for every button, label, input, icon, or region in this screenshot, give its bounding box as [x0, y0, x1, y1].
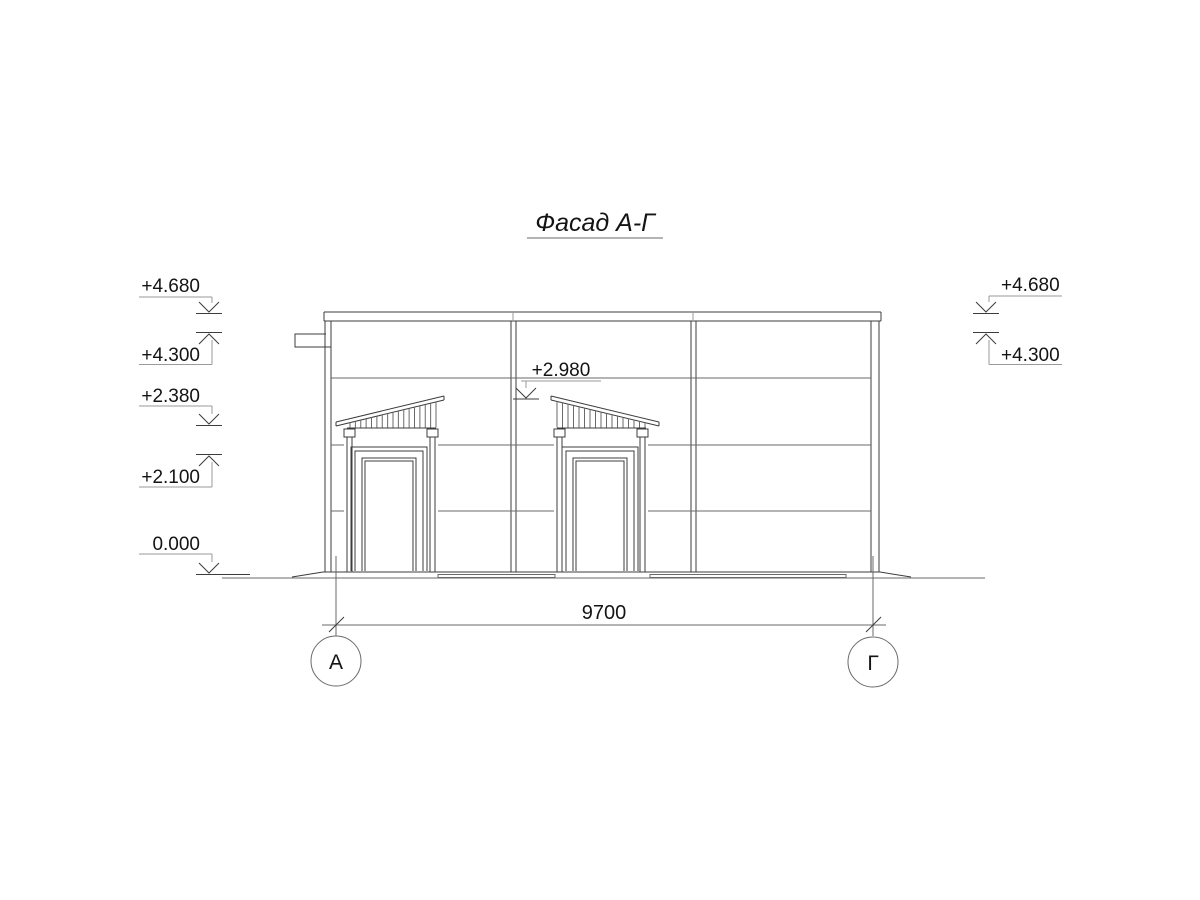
title-block: Фасад А-Г [527, 209, 663, 238]
elevation-value: +4.300 [1001, 345, 1060, 366]
door1-mask [344, 437, 438, 572]
facade-elevation-drawing: Фасад А-Г [0, 0, 1200, 900]
axis-label-right: Г [867, 652, 878, 675]
dimension-value: 9700 [582, 602, 627, 624]
elevation-value: +4.680 [1001, 275, 1060, 296]
drawing-title: Фасад А-Г [535, 209, 657, 237]
elevation-value: +2.980 [532, 360, 591, 381]
elevation-value: +2.100 [141, 467, 200, 488]
axis-label-left: А [329, 651, 343, 674]
elevation-value: +4.680 [141, 276, 200, 297]
elevation-value: +4.300 [141, 345, 200, 366]
elevation-value: +2.380 [141, 386, 200, 407]
elevation-value: 0.000 [152, 534, 200, 555]
